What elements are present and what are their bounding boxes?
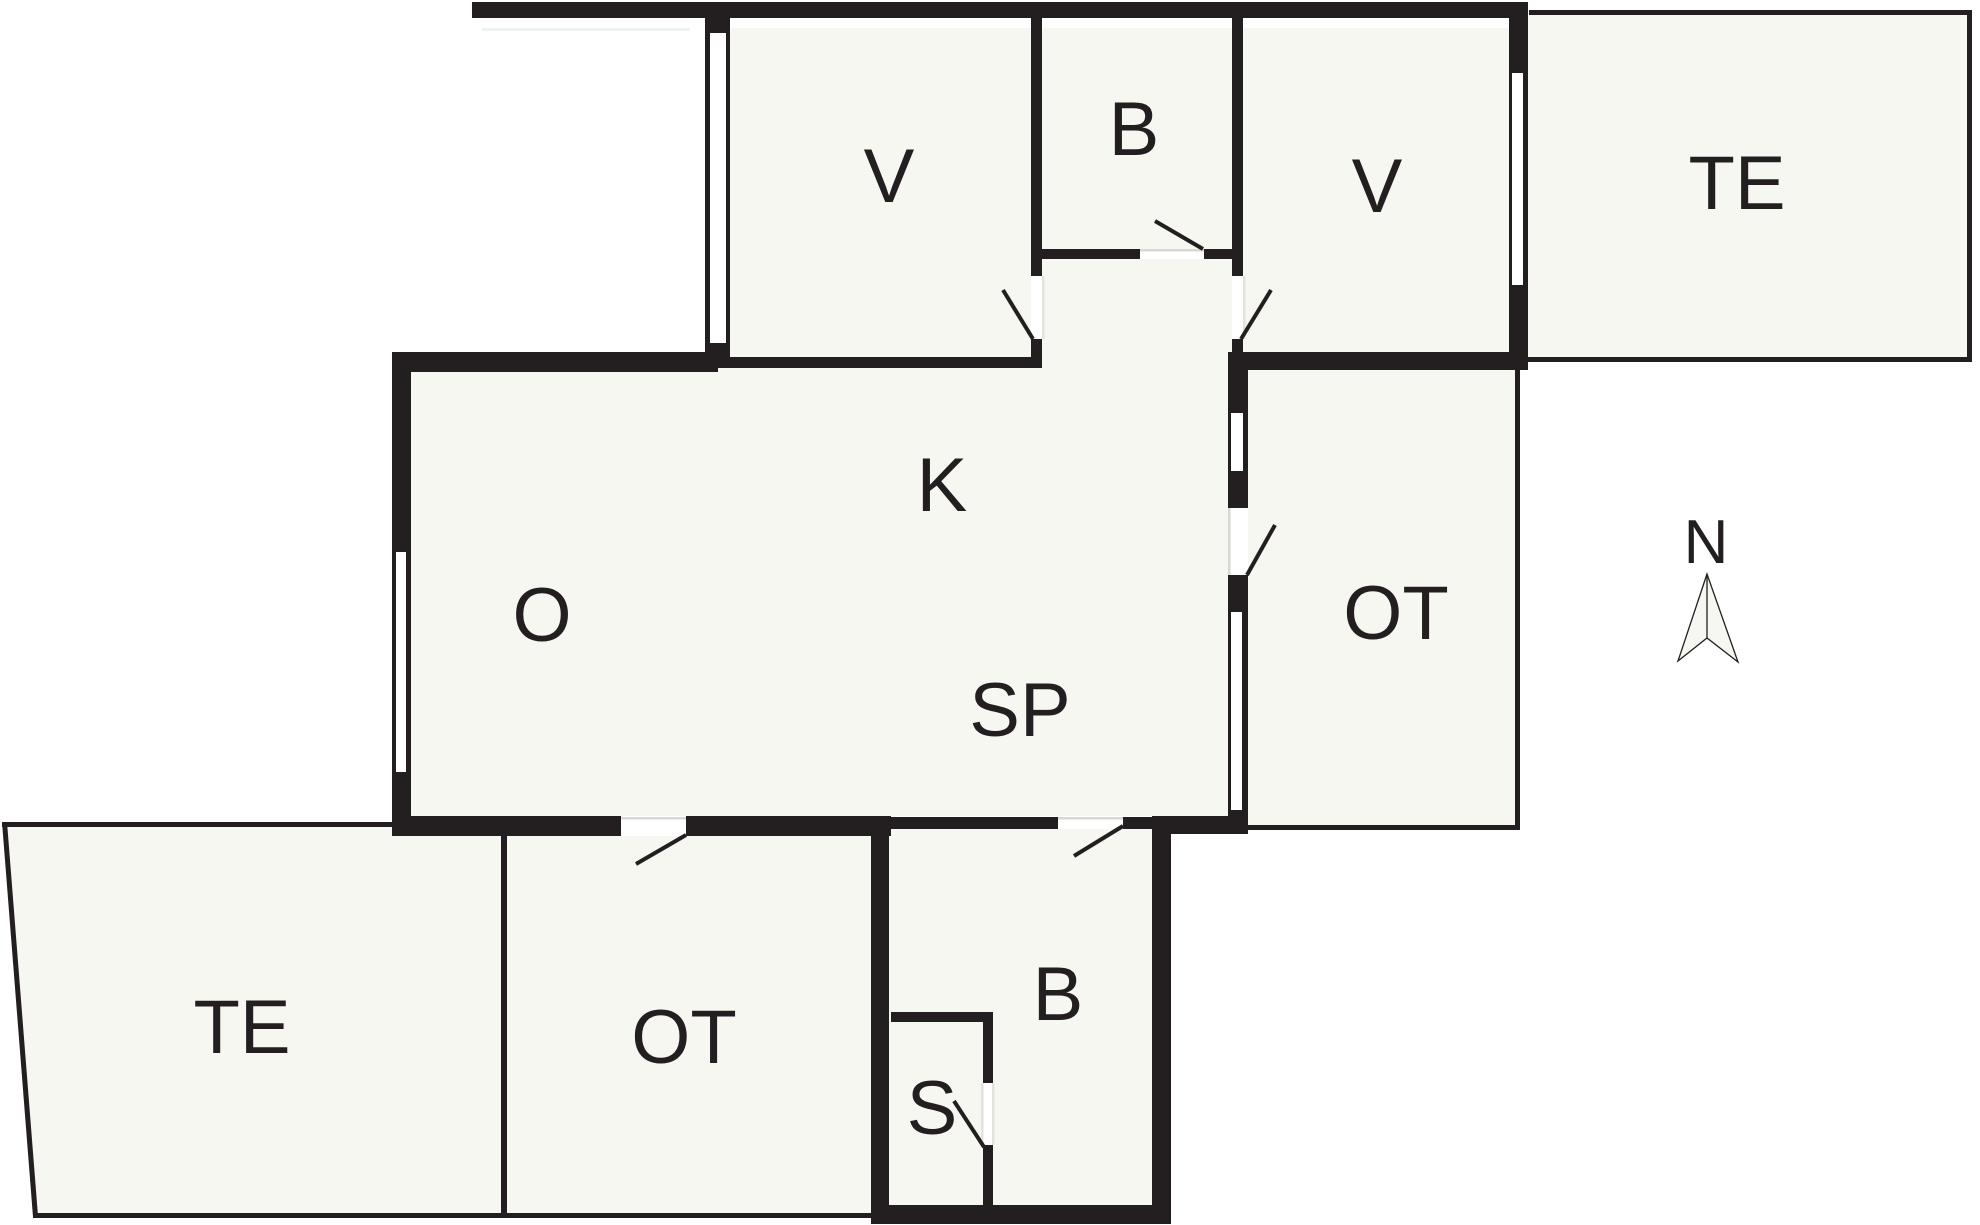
svg-text:TE: TE	[1688, 141, 1785, 226]
svg-text:S: S	[907, 1066, 958, 1151]
svg-text:O: O	[512, 573, 571, 658]
svg-text:TE: TE	[193, 985, 290, 1070]
svg-text:B: B	[1109, 87, 1160, 172]
svg-text:B: B	[1033, 952, 1084, 1037]
svg-text:OT: OT	[1343, 571, 1449, 656]
svg-text:V: V	[1352, 144, 1403, 229]
svg-text:N: N	[1684, 508, 1729, 577]
svg-text:V: V	[864, 134, 915, 219]
svg-text:SP: SP	[969, 668, 1070, 753]
svg-text:OT: OT	[631, 995, 737, 1080]
svg-text:K: K	[917, 443, 968, 528]
